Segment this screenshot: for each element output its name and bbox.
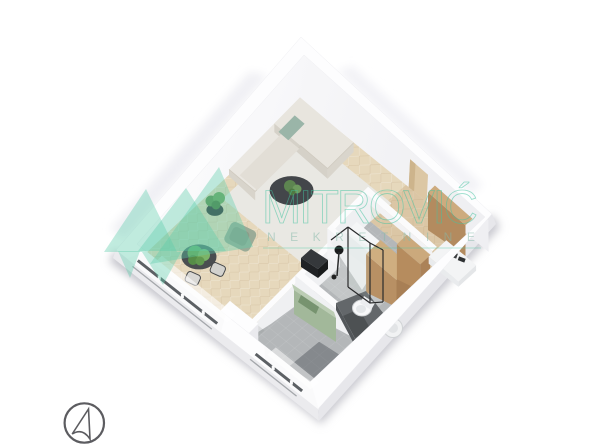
svg-text:NEKRETNINE: NEKRETNINE (267, 230, 489, 244)
svg-text:MITROVIĆ: MITROVIĆ (262, 180, 477, 233)
